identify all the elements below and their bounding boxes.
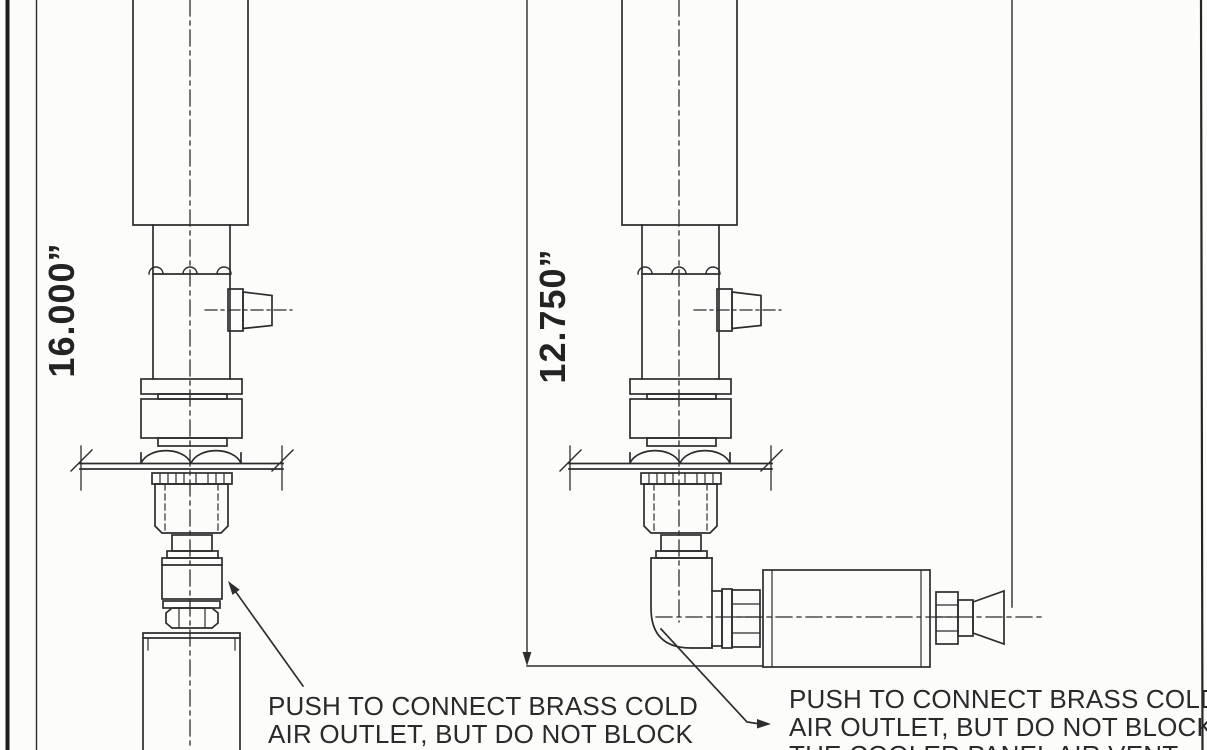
dimension-label-16in: 16.000” [39, 230, 85, 390]
right-mounting-stack [630, 379, 731, 463]
right-horizontal-muffler [763, 570, 930, 667]
dimension-12in-lines [523, 0, 1012, 666]
drawing-sheet: 16.000” 12.750” PUSH TO CONNECT BRASS CO… [0, 0, 1207, 750]
left-callout-line1: PUSH TO CONNECT BRASS COLD [268, 692, 698, 720]
drawing-linework [0, 0, 1207, 750]
left-mounting-stack [141, 379, 242, 463]
left-bottom-muffler [143, 633, 240, 750]
left-assembly [71, 0, 303, 750]
left-hose-barb [205, 289, 292, 331]
right-outlet-fitting [641, 473, 721, 533]
right-callout-line1: PUSH TO CONNECT BRASS COLD [789, 685, 1207, 713]
right-push-connect-elbow [651, 535, 760, 648]
left-callout-note: PUSH TO CONNECT BRASS COLD AIR OUTLET, B… [268, 692, 698, 750]
left-panel-nut [141, 451, 241, 463]
outlet-hex-nut [936, 592, 958, 644]
right-hose-barb [694, 289, 781, 331]
dimension-label-12in: 12.750” [530, 236, 576, 396]
left-push-connect-union [162, 535, 222, 628]
elbow-hex-nut [732, 590, 760, 647]
left-outlet-fitting [152, 473, 232, 533]
right-callout-line3: THE COOLER PANEL AIR VENT [789, 741, 1207, 750]
left-union-hex-nut [166, 608, 218, 628]
left-callout-line2: AIR OUTLET, BUT DO NOT BLOCK [268, 720, 698, 748]
right-callout-note: PUSH TO CONNECT BRASS COLD AIR OUTLET, B… [789, 685, 1207, 750]
right-callout-line2: AIR OUTLET, BUT DO NOT BLOCK [789, 713, 1207, 741]
right-assembly [560, 0, 1045, 729]
right-panel-nut [630, 451, 730, 463]
